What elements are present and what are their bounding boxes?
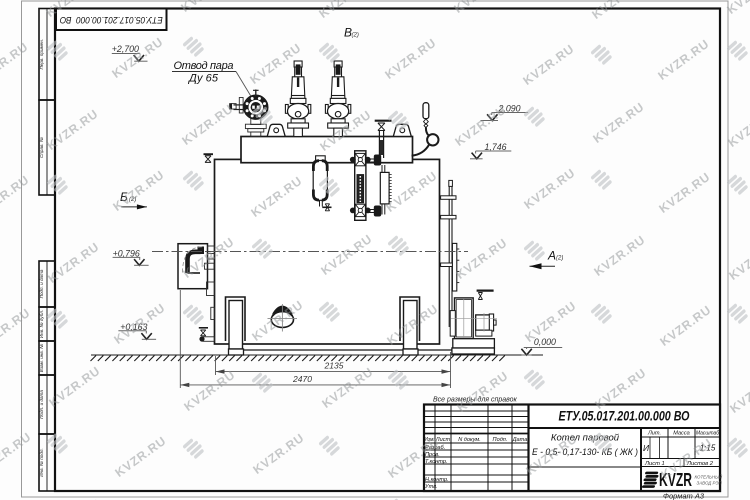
svg-text:ЕТУ.05.017.201.00.000 ВО: ЕТУ.05.017.201.00.000 ВО [60, 15, 163, 25]
svg-text:2135: 2135 [324, 361, 344, 371]
svg-text:(2): (2) [352, 33, 359, 39]
svg-text:Подп. и дата: Подп. и дата [39, 390, 44, 419]
svg-text:Подп. и дата: Подп. и дата [39, 269, 44, 298]
svg-text:+0,796: +0,796 [113, 248, 140, 258]
svg-text:ЕТУ.05.017.201.00.000 ВО: ЕТУ.05.017.201.00.000 ВО [559, 409, 690, 424]
svg-text:И: И [643, 443, 650, 453]
svg-text:Отвод пара: Отвод пара [174, 60, 234, 72]
svg-text:Дата: Дата [512, 437, 528, 443]
svg-text:Лист 1: Лист 1 [644, 461, 665, 467]
svg-text:ЗАВОД РЭП: ЗАВОД РЭП [697, 481, 723, 486]
svg-text:Н.контр.: Н.контр. [425, 477, 449, 483]
svg-text:Ду 65: Ду 65 [187, 73, 219, 85]
svg-text:Утв.: Утв. [424, 484, 438, 490]
svg-text:КОТЕЛЬНЫЙ: КОТЕЛЬНЫЙ [695, 475, 723, 480]
svg-text:2470: 2470 [292, 374, 312, 384]
svg-text:А: А [547, 249, 556, 263]
svg-text:Масса: Масса [673, 431, 690, 437]
svg-text:Масштаб: Масштаб [696, 431, 720, 437]
svg-text:(2): (2) [556, 256, 563, 262]
svg-text:Перв. примен.: Перв. примен. [39, 39, 44, 70]
svg-text:Т.контр.: Т.контр. [425, 459, 448, 465]
svg-text:Взам. инв. №: Взам. инв. № [39, 344, 44, 372]
svg-text:N докум.: N докум. [458, 437, 481, 443]
svg-text:Лит.: Лит. [647, 431, 661, 437]
svg-text:Подп.: Подп. [493, 437, 508, 443]
svg-text:Инв. № дубл.: Инв. № дубл. [39, 310, 44, 338]
svg-text:Инв. № подл.: Инв. № подл. [39, 448, 44, 477]
svg-text:Формат А3: Формат А3 [663, 492, 705, 500]
svg-text:Справ. №: Справ. № [39, 137, 44, 158]
svg-text:1,746: 1,746 [485, 142, 507, 152]
